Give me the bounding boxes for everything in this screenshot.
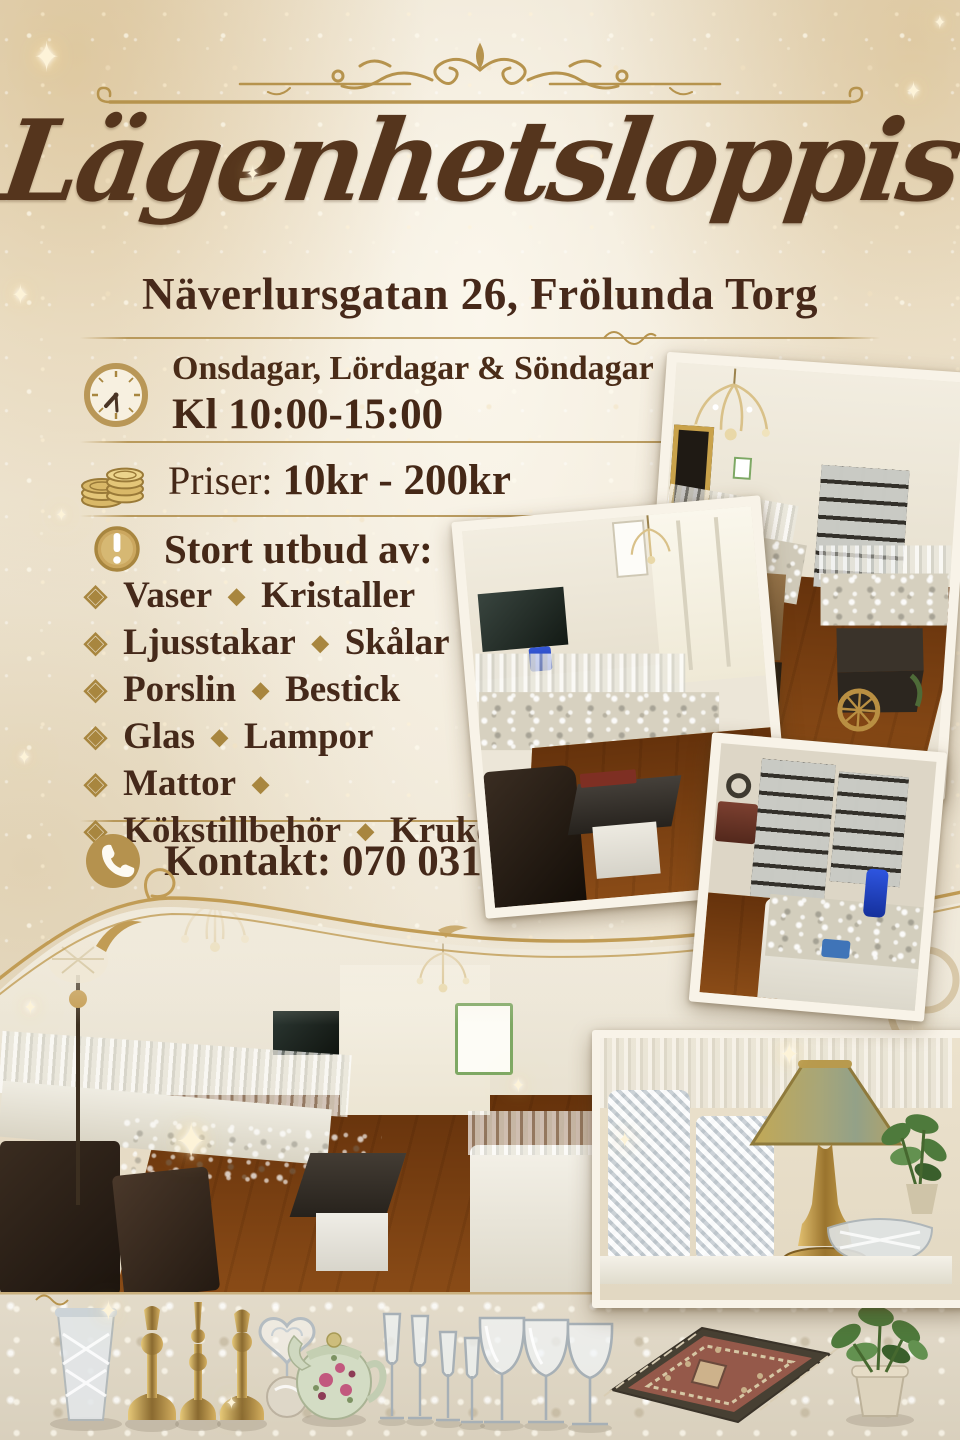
product-strip: [0, 1292, 960, 1440]
white-tablecloth: [600, 1256, 952, 1284]
phone-icon: [84, 832, 142, 890]
diamond-bullet-icon: ◈: [84, 672, 107, 707]
white-box: [592, 822, 660, 879]
strip-squiggle-icon: [36, 1296, 68, 1305]
offer-item: ◈ Glas ◆ Lampor: [84, 713, 511, 760]
offer-item-first: Mattor: [123, 762, 236, 805]
small-green-sign: [733, 457, 752, 480]
crystal-lamp-photo: ✦ ✦: [592, 1030, 960, 1308]
flea-market-flyer: ✦ ✦ ✦ ✦ ✦ ✦ ✦ ✦ ✦ ✦ ✦ ✦ ✦ ✦ Lägenhetslop…: [0, 0, 960, 1440]
address-line: Näverlursgatan 26, Frölunda Torg: [0, 268, 960, 320]
offer-item: ◈ Mattor ◆: [84, 760, 511, 807]
offer-item-first: Glas: [123, 715, 195, 758]
diamond-bullet-icon: ◈: [84, 625, 107, 660]
black-leather-chair: [483, 764, 587, 908]
crystal-vase-product: [50, 1308, 122, 1431]
offer-heading: Stort utbud av:: [164, 525, 433, 573]
offer-heading-row: Stort utbud av:: [92, 524, 433, 574]
prices-range: 10kr - 200kr: [282, 457, 511, 504]
diamond-separator-icon: ◆: [252, 771, 269, 797]
dark-painting: [478, 587, 569, 652]
diamond-separator-icon: ◆: [211, 724, 228, 750]
diamond-separator-icon: ◆: [252, 677, 269, 703]
panel-leather-chest: [112, 1166, 220, 1295]
contact-label: Kontakt:: [164, 838, 331, 885]
offer-item: ◈ Ljusstakar ◆ Skålar: [84, 619, 511, 666]
sparkle-star-icon: ✦: [934, 15, 946, 35]
panel-white-table: [470, 1145, 610, 1295]
offer-item: ◈ Vaser ◆ Kristaller: [84, 572, 511, 619]
sparkle-star-icon: ✦: [18, 749, 31, 770]
schedule-days: Onsdagar, Lördagar & Söndagar: [172, 350, 654, 388]
offer-item-second: Skålar: [345, 621, 450, 664]
brass-candlestick: [175, 1302, 221, 1431]
schedule-row: Onsdagar, Lördagar & Söndagar Kl 10:00-1…: [82, 350, 654, 439]
clock-icon: [82, 361, 150, 429]
photo-scene: [700, 743, 937, 1011]
divider-line: [80, 337, 880, 339]
diamond-bullet-icon: ◈: [84, 766, 107, 801]
prices-text: Priser: 10kr - 200kr: [168, 456, 511, 505]
product-strip-items: [0, 1292, 960, 1440]
divider-ornament-icon: [600, 328, 660, 346]
glass-display-cabinet: [750, 759, 836, 905]
crystal-vase-large: [608, 1090, 690, 1268]
poster-title: Lägenhetsloppis: [0, 96, 960, 227]
offer-item-second: Kristaller: [261, 574, 415, 617]
photo-scene: ✦ ✦: [600, 1038, 960, 1300]
prices-label: Priser:: [168, 458, 272, 503]
diamond-separator-icon: ◆: [228, 583, 245, 609]
diamond-separator-icon: ◆: [312, 630, 329, 656]
panel-white-box: [316, 1213, 388, 1271]
red-chest: [715, 801, 758, 844]
oriental-rug: [604, 1328, 838, 1422]
sparkle-star-icon: ✦: [56, 505, 67, 523]
offer-item-first: Vaser: [123, 574, 212, 617]
table-clutter: [821, 574, 949, 626]
wine-glasses: [480, 1318, 612, 1433]
wall-wreath: [722, 769, 755, 802]
diamond-bullet-icon: ◈: [84, 719, 107, 754]
diamond-bullet-icon: ◈: [84, 578, 107, 613]
schedule-hours: Kl 10:00-15:00: [172, 390, 654, 439]
schedule-text: Onsdagar, Lördagar & Söndagar Kl 10:00-1…: [172, 350, 654, 439]
sparkle-star-icon: ✦: [34, 38, 59, 80]
offer-item-first: Ljusstakar: [123, 621, 296, 664]
interior-photo-cabinet: [689, 732, 948, 1022]
alert-icon: [92, 524, 142, 574]
green-plant: [872, 1108, 952, 1218]
brass-candlestick: [125, 1306, 179, 1432]
offer-item: ◈ Porslin ◆ Bestick: [84, 666, 511, 713]
chandelier: [617, 513, 683, 588]
potted-plant: [827, 1303, 932, 1427]
champagne-flutes: [378, 1314, 485, 1430]
tea-cart: [819, 620, 936, 737]
prices-row: Priser: 10kr - 200kr: [80, 450, 511, 510]
blue-box: [821, 939, 850, 959]
offer-item-first: Porslin: [123, 668, 236, 711]
offer-item-second: Bestick: [285, 668, 400, 711]
offer-item-second: Lampor: [244, 715, 374, 758]
coins-icon: [80, 450, 146, 510]
offer-list: ◈ Vaser ◆ Kristaller ◈ Ljusstakar ◆ Skål…: [84, 572, 511, 854]
blue-thermos: [863, 868, 889, 918]
